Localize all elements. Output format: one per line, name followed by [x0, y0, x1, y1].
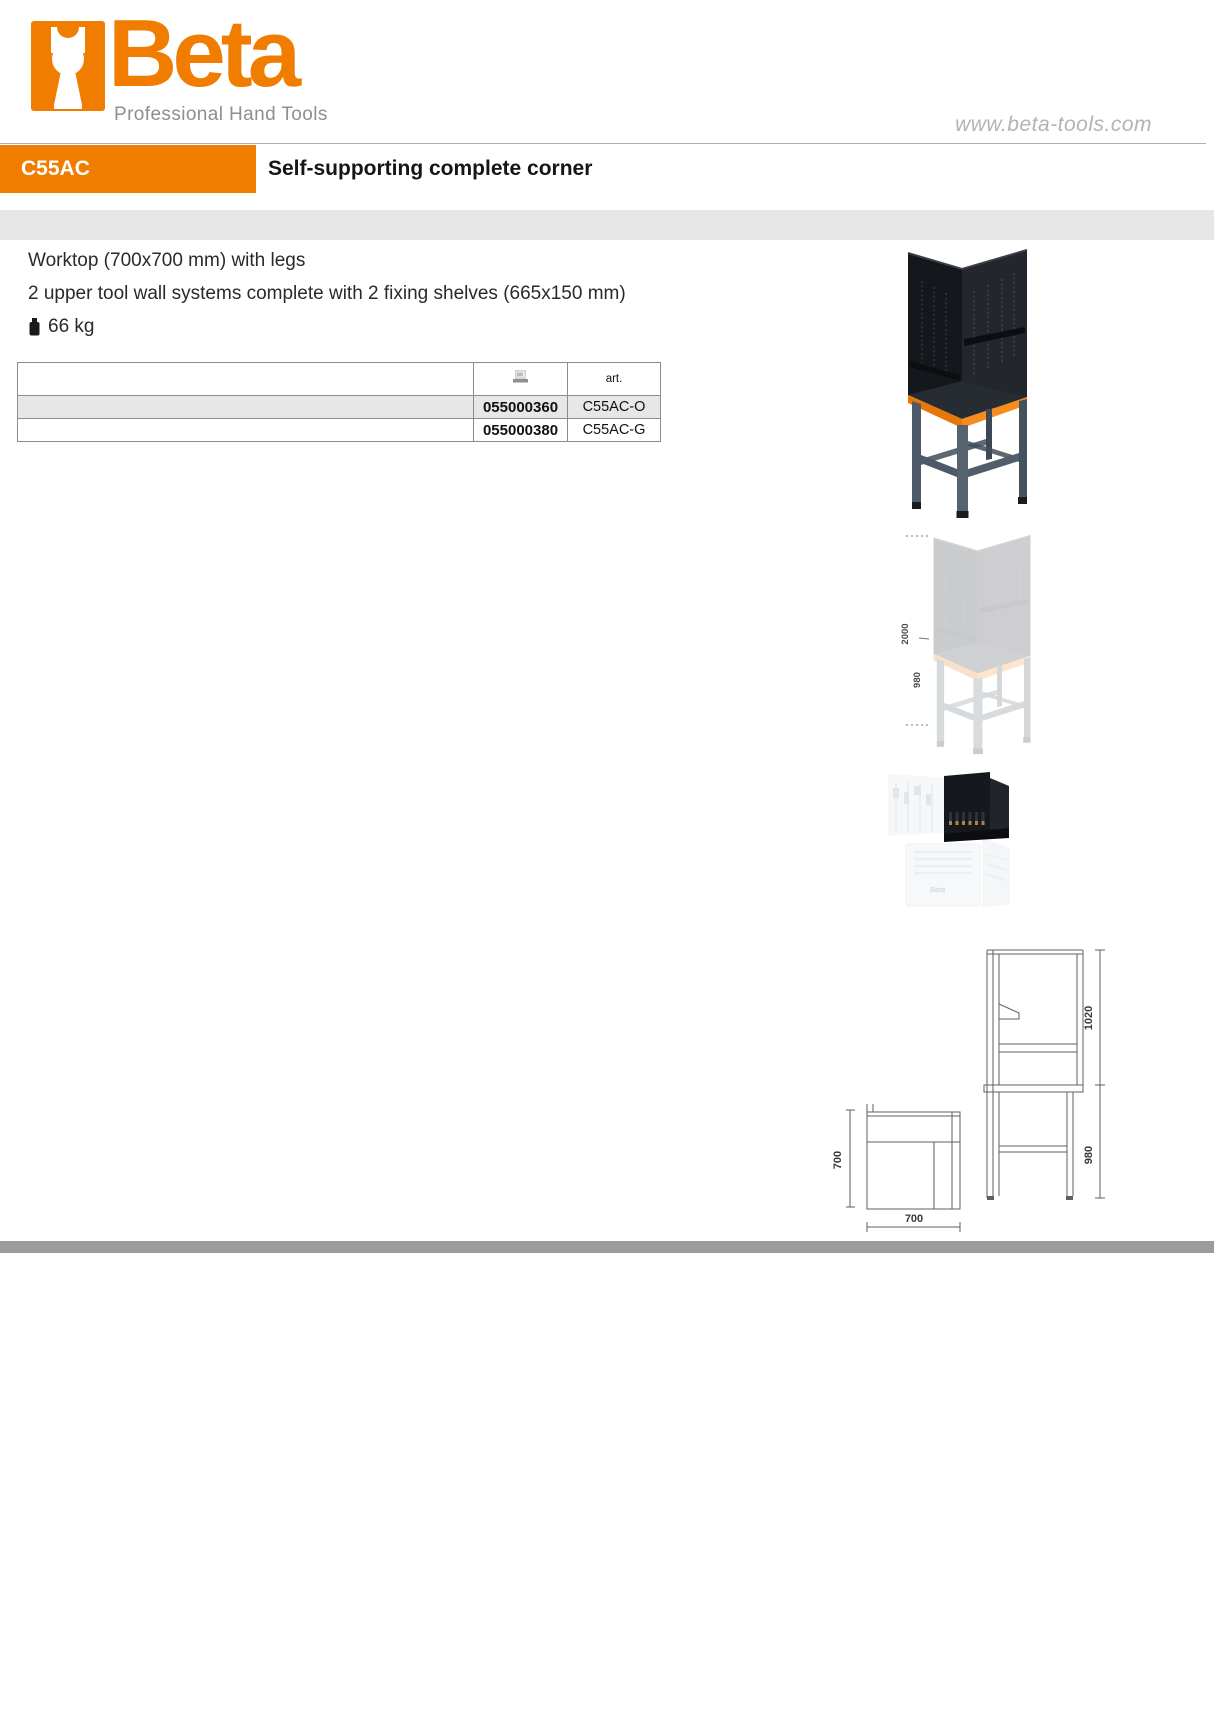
table-row: 055000360 C55AC-O — [18, 396, 661, 419]
barcode-icon — [512, 370, 529, 383]
detail-photo: Beta — [878, 772, 1010, 944]
overall-height-label: 2000 — [900, 623, 911, 644]
corner-shelf-detail — [944, 772, 1009, 842]
plan-view — [867, 1104, 960, 1209]
dimension-ghost-figure: 2000 980 — [893, 528, 1040, 758]
description-line: Worktop (700x700 mm) with legs — [28, 250, 305, 272]
header-divider — [0, 143, 1206, 144]
product-code-cell: 055000380 — [474, 419, 568, 442]
article-cell: C55AC-G — [568, 419, 661, 442]
article-cell: C55AC-O — [568, 396, 661, 419]
worktop-height-label: 980 — [912, 672, 923, 688]
title-underband — [0, 210, 1214, 240]
code-column-header — [474, 363, 568, 396]
description-column-header — [18, 363, 474, 396]
weight-icon — [28, 318, 41, 336]
product-code-cell: 055000360 — [474, 396, 568, 419]
art-column-header: art. — [568, 363, 661, 396]
upper-section-height-label: 1020 — [1083, 1006, 1095, 1030]
table-row: 055000380 C55AC-G — [18, 419, 661, 442]
plan-width-label: 700 — [905, 1213, 923, 1225]
website-link[interactable]: www.beta-tools.com — [955, 113, 1152, 137]
weight-row: 66 kg — [28, 316, 94, 338]
table-header-row: art. — [18, 363, 661, 396]
weight-value: 66 kg — [48, 316, 94, 338]
bench-height-label: 980 — [1083, 1146, 1095, 1164]
product-code-badge: C55AC — [0, 145, 256, 193]
brand-name: Beta — [108, 6, 296, 102]
catalog-page: Beta Professional Hand Tools www.beta-to… — [0, 0, 1214, 1717]
cabinet-logo-label: Beta — [930, 887, 945, 894]
footer-bar — [0, 1241, 1214, 1253]
product-photo — [900, 243, 1035, 518]
description-line: 2 upper tool wall systems complete with … — [28, 283, 626, 305]
beta-wrench-logo-icon — [31, 21, 105, 111]
page-title: Self-supporting complete corner — [268, 145, 592, 193]
technical-drawing: 700 700 — [755, 938, 1115, 1238]
side-view — [984, 950, 1083, 1200]
plan-depth-label: 700 — [832, 1151, 844, 1169]
brand-tagline: Professional Hand Tools — [114, 104, 328, 126]
order-table: art. 055000360 C55AC-O 055000380 C55AC-G — [17, 362, 661, 442]
